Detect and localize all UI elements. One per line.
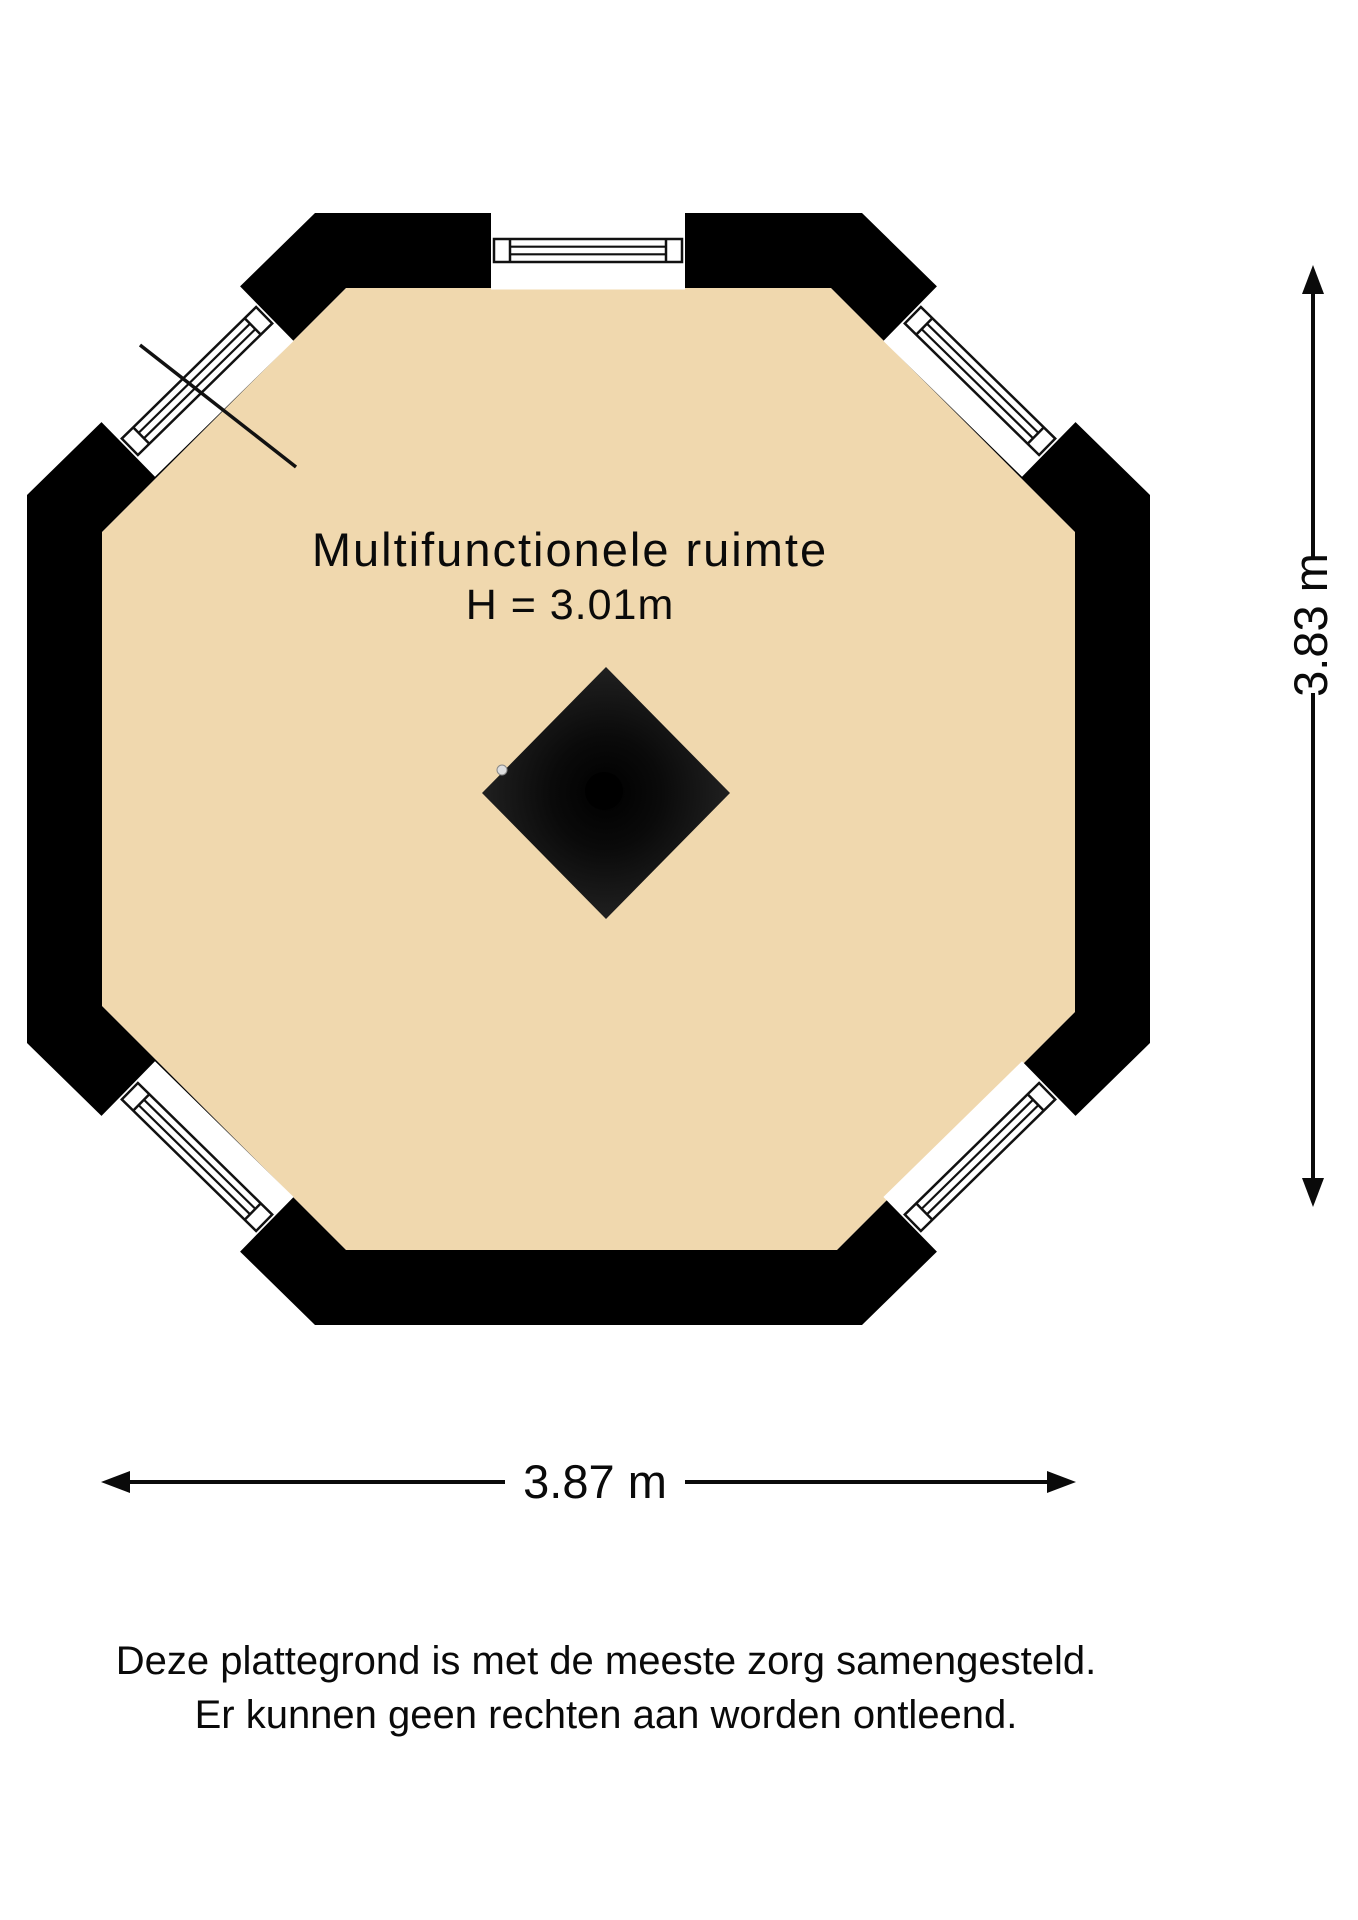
window-frame — [494, 239, 682, 262]
window-top — [491, 212, 685, 290]
chimney-flue — [585, 772, 623, 810]
small-dot-marker — [497, 765, 507, 775]
floorplan-canvas: Multifunctionele ruimte H = 3.01m 3.87 m… — [0, 0, 1358, 1920]
disclaimer-line-2: Er kunnen geen rechten aan worden ontlee… — [195, 1693, 1018, 1737]
room-name-label: Multifunctionele ruimte — [312, 523, 828, 576]
width-dimension-label: 3.87 m — [523, 1455, 667, 1508]
height-dimension-label: 3.83 m — [1284, 553, 1337, 697]
disclaimer-line-1: Deze plattegrond is met de meeste zorg s… — [116, 1639, 1097, 1683]
room-height-label: H = 3.01m — [466, 581, 675, 629]
